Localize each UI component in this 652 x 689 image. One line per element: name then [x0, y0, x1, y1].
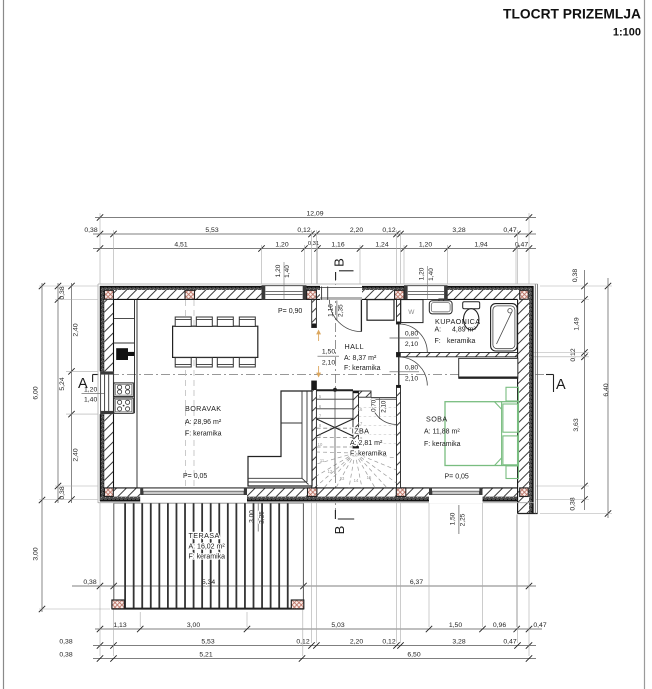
svg-text:2,10: 2,10 [381, 400, 388, 413]
svg-text:11: 11 [320, 458, 325, 463]
svg-text:1,40: 1,40 [84, 397, 97, 404]
svg-text:3,00: 3,00 [187, 622, 200, 629]
svg-text:0,96: 0,96 [493, 622, 506, 629]
svg-text:12,09: 12,09 [306, 210, 323, 217]
svg-text:F: keramika: F: keramika [424, 441, 461, 448]
svg-text:1,50: 1,50 [449, 512, 456, 525]
svg-text:P= 0,05: P= 0,05 [445, 474, 469, 481]
svg-text:4,89 m²: 4,89 m² [452, 327, 476, 334]
svg-text:A: A [556, 377, 566, 393]
svg-text:TERASA: TERASA [189, 531, 220, 540]
svg-text:1,20: 1,20 [419, 267, 426, 280]
svg-text:A: 2,81 m²: A: 2,81 m² [350, 440, 383, 447]
svg-text:HALL: HALL [345, 342, 365, 351]
svg-text:2,35: 2,35 [337, 304, 344, 317]
svg-text:A: 8,37 m²: A: 8,37 m² [344, 355, 377, 362]
svg-text:0,12: 0,12 [382, 227, 395, 234]
svg-text:A: 11,88 m²: A: 11,88 m² [424, 429, 460, 436]
svg-text:17: 17 [358, 421, 363, 426]
svg-text:F: keramika: F: keramika [350, 451, 387, 458]
svg-text:6,00: 6,00 [33, 386, 40, 399]
svg-text:P= 0,05: P= 0,05 [183, 473, 207, 480]
svg-text:0,12: 0,12 [382, 638, 395, 645]
svg-text:3,28: 3,28 [452, 227, 465, 234]
svg-text:0,47: 0,47 [533, 622, 546, 629]
svg-text:1,50: 1,50 [449, 622, 462, 629]
svg-text:12: 12 [328, 469, 333, 474]
svg-text:IZBA: IZBA [352, 427, 370, 436]
svg-text:10: 10 [318, 442, 323, 447]
svg-text:6,40: 6,40 [603, 383, 610, 396]
svg-text:5,34: 5,34 [202, 579, 215, 586]
svg-text:0,38: 0,38 [84, 227, 97, 234]
svg-text:2,10: 2,10 [405, 376, 418, 383]
svg-text:1,13: 1,13 [113, 622, 126, 629]
svg-text:3,00: 3,00 [33, 547, 40, 560]
svg-text:5,24: 5,24 [59, 377, 66, 390]
svg-text:0,38: 0,38 [59, 486, 66, 499]
svg-text:5,21: 5,21 [199, 651, 212, 658]
svg-text:0,47: 0,47 [515, 241, 528, 248]
svg-text:0,12: 0,12 [297, 227, 310, 234]
svg-text:0,38: 0,38 [570, 497, 577, 510]
svg-text:2,20: 2,20 [350, 227, 363, 234]
svg-text:1,40: 1,40 [284, 265, 291, 278]
svg-text:0,38: 0,38 [59, 286, 66, 299]
svg-text:2,20: 2,20 [350, 638, 363, 645]
svg-text:2,10: 2,10 [322, 360, 335, 367]
svg-text:1,20: 1,20 [275, 264, 282, 277]
svg-text:0,47: 0,47 [503, 638, 516, 645]
svg-text:F:: F: [435, 338, 441, 345]
svg-text:3,28: 3,28 [452, 638, 465, 645]
svg-text:5,03: 5,03 [331, 622, 344, 629]
svg-text:KUPAONICA: KUPAONICA [435, 317, 480, 326]
svg-text:1,16: 1,16 [327, 304, 334, 317]
svg-text:1,16: 1,16 [331, 241, 344, 248]
svg-text:6,37: 6,37 [410, 579, 423, 586]
svg-text:15: 15 [367, 475, 372, 480]
svg-text:1,94: 1,94 [474, 241, 487, 248]
svg-text:14: 14 [354, 478, 359, 483]
svg-text:0,38: 0,38 [59, 651, 72, 658]
svg-text:3,63: 3,63 [573, 418, 580, 431]
svg-text:0,38: 0,38 [83, 579, 96, 586]
svg-text:0,12: 0,12 [296, 638, 309, 645]
svg-text:6,50: 6,50 [407, 651, 420, 658]
svg-text:2,10: 2,10 [405, 341, 418, 348]
svg-text:0,38: 0,38 [59, 638, 72, 645]
svg-text:16: 16 [358, 407, 363, 412]
svg-text:1,49: 1,49 [574, 317, 581, 330]
svg-text:5,53: 5,53 [205, 227, 218, 234]
svg-text:1,20: 1,20 [275, 241, 288, 248]
svg-text:SOBA: SOBA [426, 415, 448, 424]
svg-text:1,20: 1,20 [419, 241, 432, 248]
svg-text:A:: A: [435, 327, 442, 334]
svg-text:0,47: 0,47 [503, 227, 516, 234]
svg-text:1,40: 1,40 [428, 268, 435, 281]
svg-text:B: B [332, 258, 347, 267]
svg-text:0,12: 0,12 [570, 348, 577, 361]
svg-text:4,51: 4,51 [174, 241, 187, 248]
svg-text:0,80: 0,80 [405, 331, 418, 338]
svg-text:keramika: keramika [447, 338, 476, 345]
svg-text:1:100: 1:100 [613, 27, 641, 39]
svg-text:P= 0,90: P= 0,90 [278, 308, 302, 315]
svg-text:1,24: 1,24 [375, 241, 388, 248]
svg-text:F: keramika: F: keramika [189, 554, 226, 561]
svg-text:2,40: 2,40 [73, 448, 80, 461]
svg-text:F: keramika: F: keramika [344, 365, 381, 372]
svg-text:0,38: 0,38 [572, 269, 579, 282]
svg-text:A: 28,96 m²: A: 28,96 m² [185, 419, 222, 426]
svg-text:0,70: 0,70 [370, 399, 377, 412]
svg-text:TLOCRT PRIZEMLJA: TLOCRT PRIZEMLJA [503, 7, 641, 22]
svg-text:1,50: 1,50 [322, 349, 335, 356]
svg-text:F: keramika: F: keramika [185, 431, 222, 438]
svg-text:B: B [332, 526, 347, 535]
svg-text:2,40: 2,40 [73, 323, 80, 336]
svg-text:2,25: 2,25 [459, 513, 466, 526]
svg-text:0,80: 0,80 [405, 364, 418, 371]
svg-text:A: 16,02 m²: A: 16,02 m² [189, 544, 226, 551]
svg-text:5,53: 5,53 [201, 638, 214, 645]
svg-text:1,20: 1,20 [84, 387, 97, 394]
svg-text:13: 13 [340, 476, 345, 481]
svg-text:BORAVAK: BORAVAK [185, 404, 221, 413]
svg-text:W: W [408, 309, 415, 316]
